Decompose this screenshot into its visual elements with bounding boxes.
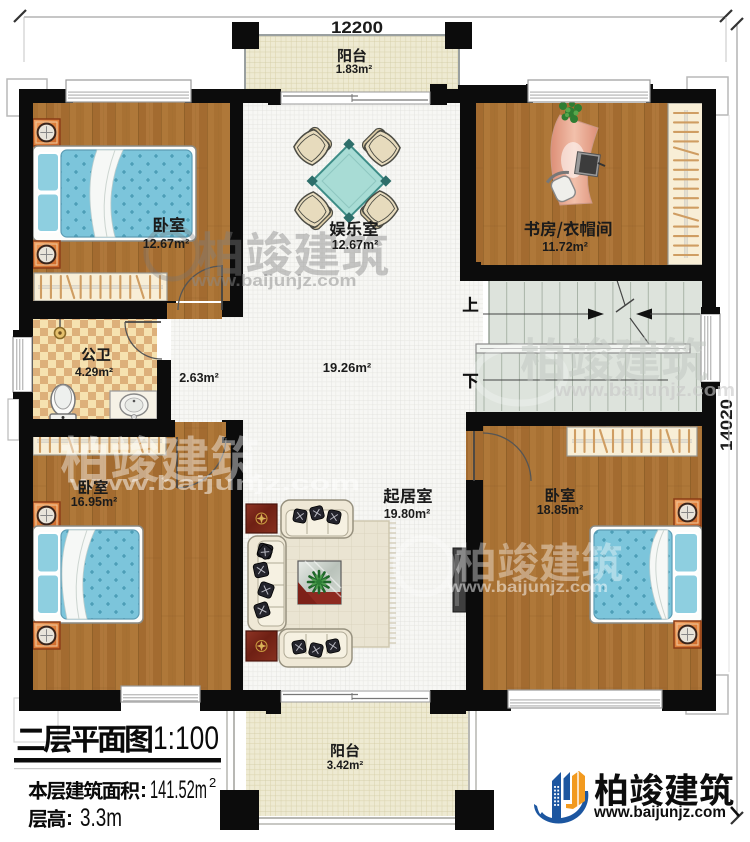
svg-text:www.baijunjz.com: www.baijunjz.com — [190, 271, 356, 290]
svg-text:14020: 14020 — [717, 399, 736, 451]
svg-text:3.3m: 3.3m — [80, 804, 122, 832]
svg-text:18.85m²: 18.85m² — [537, 503, 584, 517]
svg-text:2: 2 — [209, 775, 216, 790]
svg-text:11.72m²: 11.72m² — [542, 240, 588, 254]
svg-text:16.95m²: 16.95m² — [71, 495, 118, 509]
svg-text:www.baijunjz.com: www.baijunjz.com — [593, 804, 726, 821]
svg-text:1.83m²: 1.83m² — [336, 64, 373, 76]
svg-text:19.80m²: 19.80m² — [384, 507, 431, 521]
svg-text::: : — [66, 807, 73, 830]
svg-text:4.29m²: 4.29m² — [75, 365, 113, 379]
svg-text:141.52m: 141.52m — [150, 776, 207, 804]
svg-text:12.67m²: 12.67m² — [332, 238, 379, 252]
svg-text:19.26m²: 19.26m² — [323, 360, 372, 375]
svg-text:www.baijunjz.com: www.baijunjz.com — [68, 473, 360, 495]
svg-text:3.42m²: 3.42m² — [327, 760, 364, 772]
svg-text:www.baijunjz.com: www.baijunjz.com — [447, 579, 608, 596]
svg-text:12.67m²: 12.67m² — [143, 237, 190, 251]
svg-text:2.63m²: 2.63m² — [179, 371, 219, 385]
svg-text:www.baijunjz.com: www.baijunjz.com — [554, 380, 735, 400]
svg-text::: : — [140, 779, 147, 802]
svg-text:1:100: 1:100 — [153, 720, 219, 756]
